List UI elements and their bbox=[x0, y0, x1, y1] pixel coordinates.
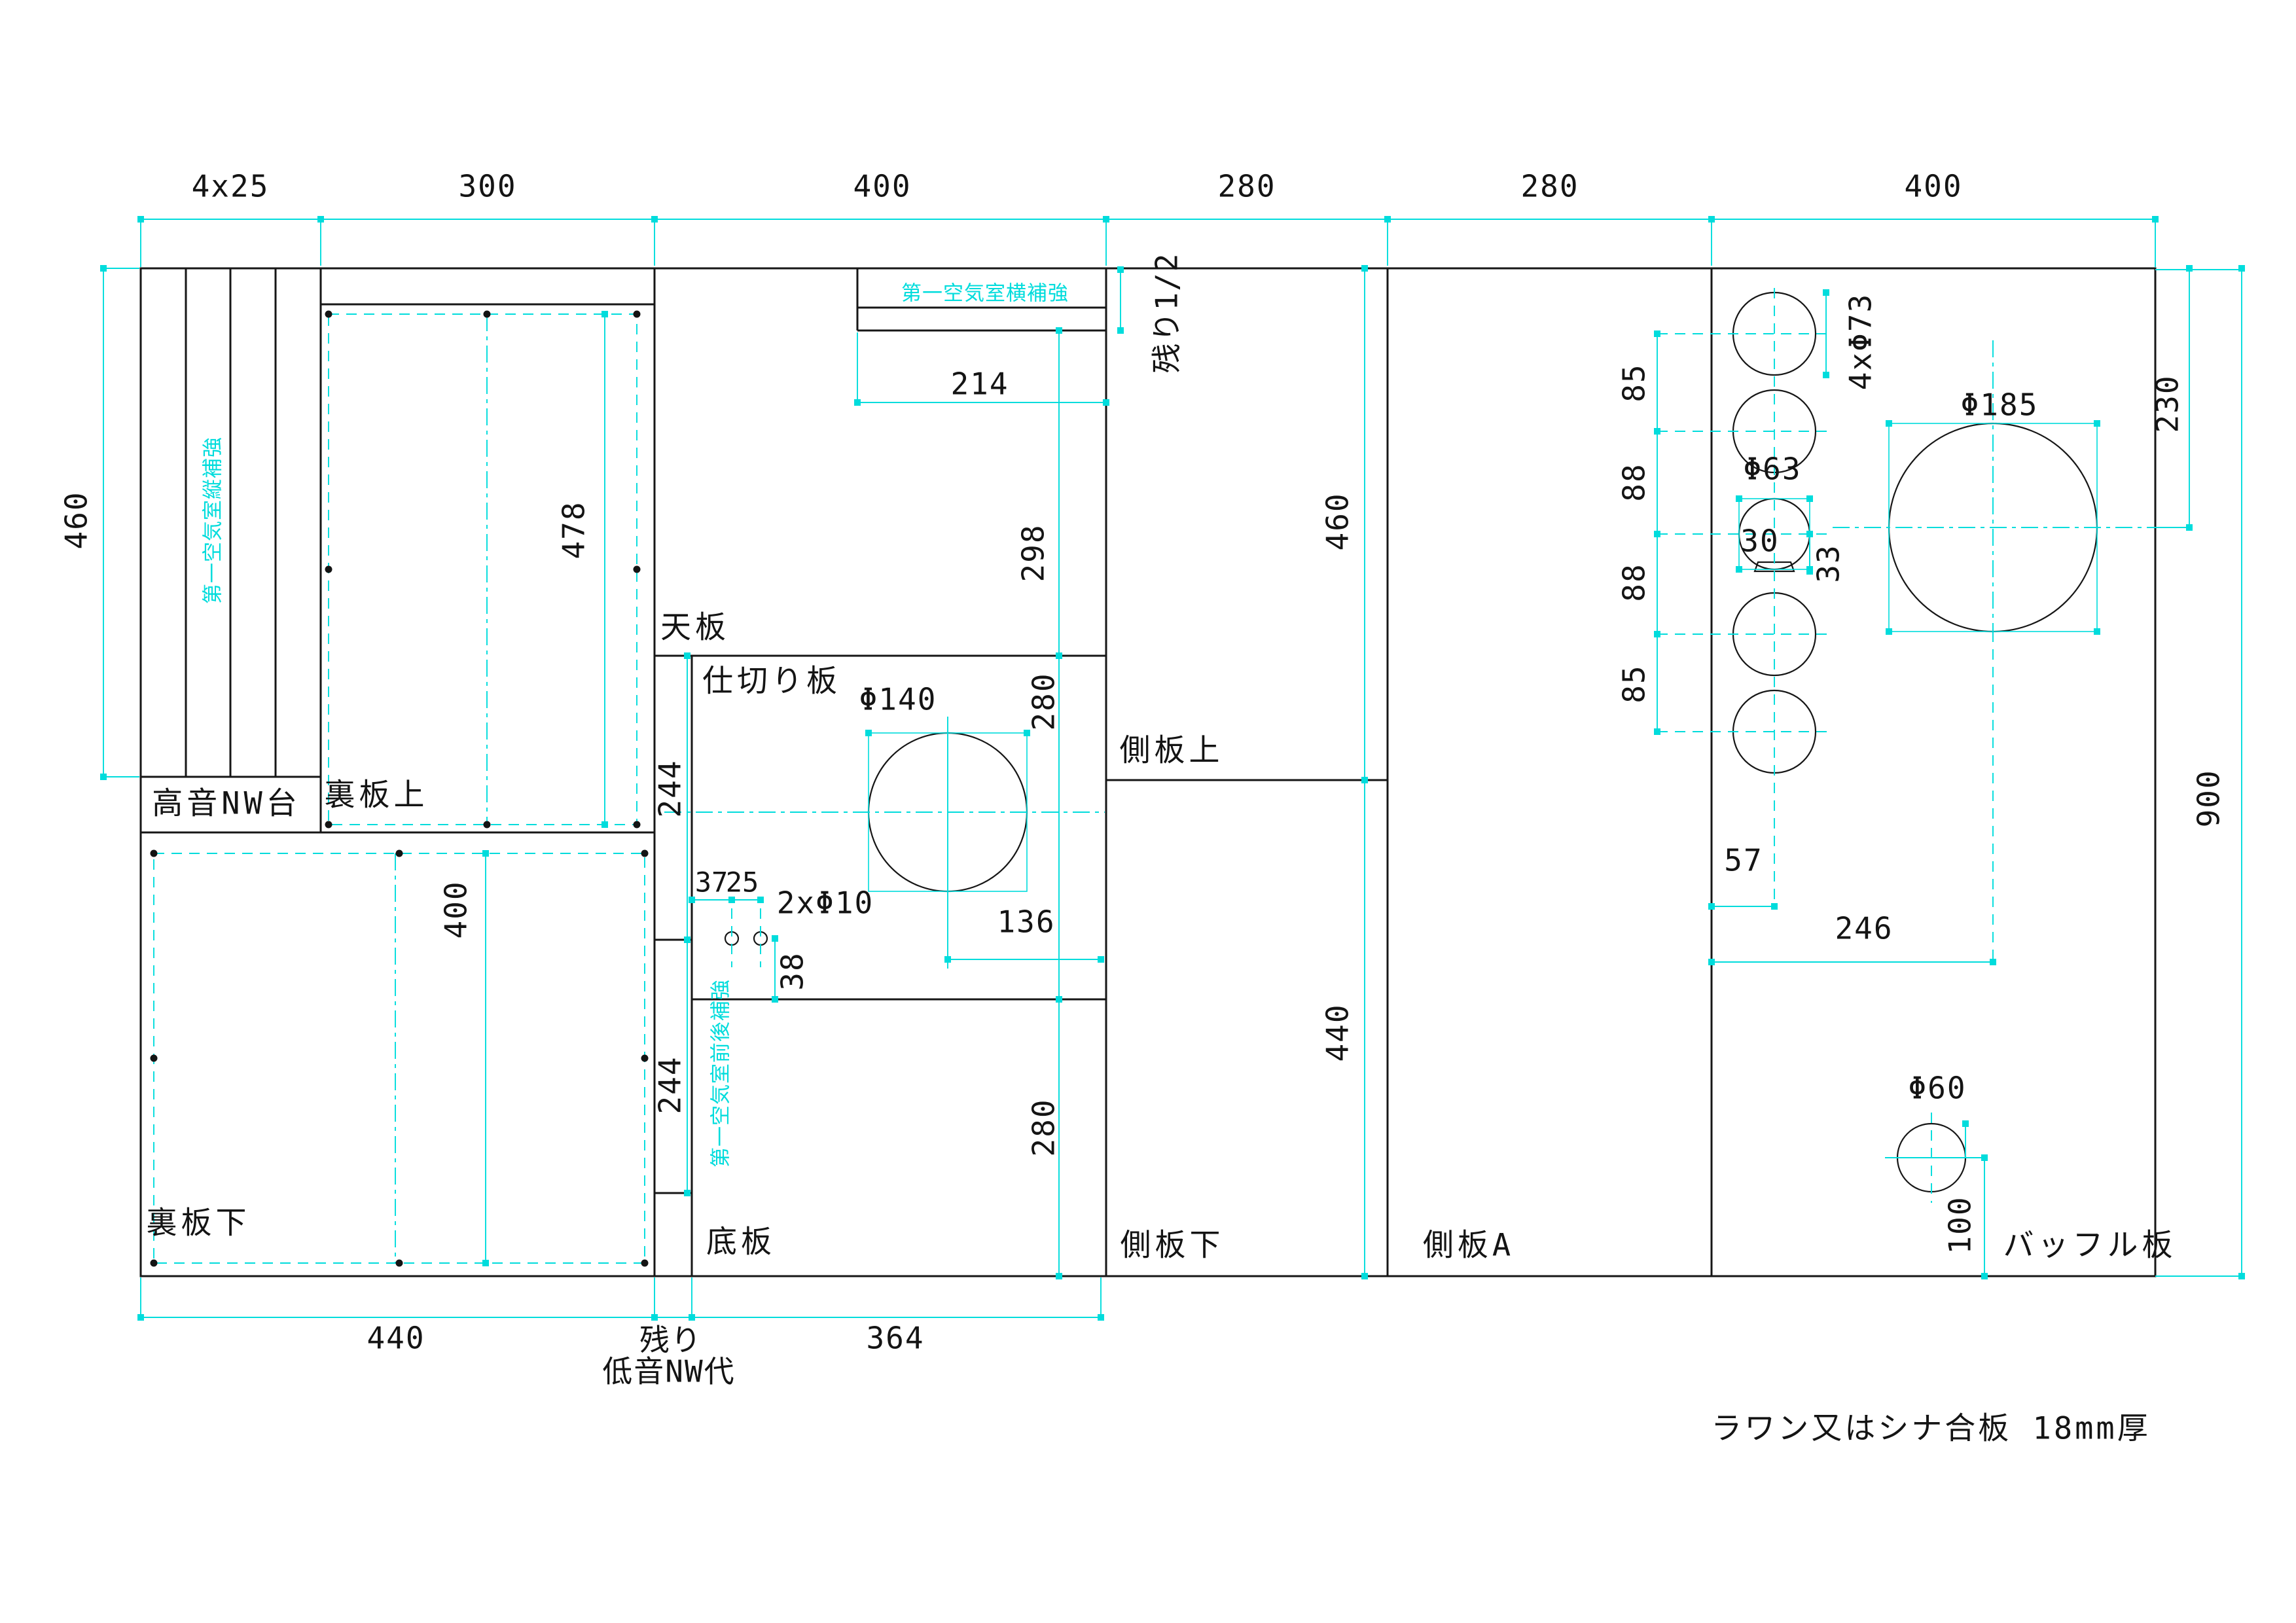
label-side-lower: 側板下 bbox=[1121, 1228, 1225, 1264]
dim-tick bbox=[1361, 777, 1368, 783]
label-back-lower: 裏板下 bbox=[147, 1205, 251, 1241]
marking-dot bbox=[634, 821, 641, 829]
dim-57: 57 bbox=[1724, 843, 1763, 878]
cutout-circles bbox=[725, 293, 2097, 1192]
dim-tick bbox=[1056, 327, 1062, 334]
dim-tick bbox=[1962, 1120, 1969, 1127]
dim-tick bbox=[601, 311, 608, 317]
dim-tick bbox=[2238, 265, 2245, 272]
dim-tick bbox=[689, 1314, 695, 1321]
dim-tick bbox=[1056, 652, 1062, 659]
plywood-cutting-diagram: 4x25 300 400 280 280 400 高音NW台 裏板上 裏板下 天… bbox=[0, 0, 2296, 1623]
dim-tick bbox=[1736, 566, 1742, 573]
label-side-a: 側板A bbox=[1423, 1228, 1515, 1264]
marking-dot bbox=[325, 821, 332, 829]
label-side-upper: 側板上 bbox=[1120, 733, 1224, 769]
dim-tick bbox=[772, 935, 778, 942]
dim-tick bbox=[100, 265, 107, 272]
notes: 残り 低音NW代 ラワン又はシナ合板 18mm厚 bbox=[602, 1323, 2150, 1447]
dim-tick bbox=[601, 821, 608, 828]
dim-88a: 88 bbox=[1617, 463, 1652, 501]
note-low-nw: 低音NW代 bbox=[602, 1354, 735, 1389]
dim-tick bbox=[865, 730, 872, 736]
label-baffle: バッフル板 bbox=[2003, 1228, 2177, 1264]
left-strip-column bbox=[141, 268, 321, 832]
dim-tick bbox=[1806, 531, 1813, 537]
marking-dot bbox=[634, 566, 641, 573]
marking-dot bbox=[484, 311, 491, 318]
sheet-outline bbox=[141, 268, 2155, 1276]
dim-tick bbox=[1103, 399, 1109, 406]
dim-col5: 280 bbox=[1520, 169, 1579, 204]
marking-dot bbox=[396, 850, 403, 857]
dim-100: 100 bbox=[1943, 1196, 1978, 1254]
dim-col2: 300 bbox=[458, 169, 516, 204]
dim-tick bbox=[1771, 903, 1778, 910]
label-bottom-plate: 底板 bbox=[706, 1224, 776, 1260]
label-top-plate: 天板 bbox=[660, 610, 730, 646]
marking-dot bbox=[325, 311, 332, 318]
dim-60: Φ60 bbox=[1908, 1071, 1966, 1106]
label-back-upper: 裏板上 bbox=[325, 777, 429, 813]
label-reinf-vertical: 第一空気室縦補強 bbox=[202, 437, 225, 604]
marking-dot bbox=[484, 821, 491, 829]
dim-divider-280: 280 bbox=[1026, 672, 1062, 730]
dim-136: 136 bbox=[997, 904, 1055, 940]
dim-tick bbox=[1806, 495, 1813, 502]
dim-left-460: 460 bbox=[59, 491, 94, 549]
side-panel-edges bbox=[1106, 268, 1712, 1276]
dim-tick bbox=[651, 1314, 658, 1321]
dim-298: 298 bbox=[1016, 524, 1051, 582]
dim-244-lower: 244 bbox=[653, 1056, 688, 1114]
dim-tick bbox=[684, 652, 691, 659]
marking-rectangles bbox=[154, 314, 2097, 1263]
dim-tick bbox=[944, 956, 951, 963]
dim-tick bbox=[1823, 372, 1829, 378]
dim-bottom-280: 280 bbox=[1026, 1098, 1062, 1156]
dim-25: 25 bbox=[726, 866, 759, 899]
label-tweeter-nw-base: 高音NW台 bbox=[152, 786, 301, 822]
dim-63: Φ63 bbox=[1743, 452, 1801, 487]
dim-tick bbox=[1886, 628, 1892, 635]
dim-tick bbox=[1981, 1154, 1988, 1161]
cutting-layout-drawing: 4x25 300 400 280 280 400 高音NW台 裏板上 裏板下 天… bbox=[0, 0, 2296, 1623]
marking-dot bbox=[325, 566, 332, 573]
dim-tick bbox=[2238, 1273, 2245, 1279]
dim-tick bbox=[684, 1190, 691, 1196]
dim-side-440: 440 bbox=[1320, 1003, 1355, 1061]
marking-dot bbox=[641, 1260, 649, 1267]
dim-88b: 88 bbox=[1617, 563, 1652, 601]
dim-tick bbox=[1117, 327, 1124, 334]
dim-side-460: 460 bbox=[1320, 492, 1355, 550]
dim-tick bbox=[1384, 216, 1391, 223]
back-upper-marking bbox=[329, 314, 637, 825]
marking-dot bbox=[151, 1260, 158, 1267]
dim-tick bbox=[1098, 956, 1104, 963]
note-leftover: 残り bbox=[639, 1323, 702, 1358]
dim-col3: 400 bbox=[853, 169, 911, 204]
reinforcement-labels: 第一空気室縦補強 第一空気室横補強 第一空気室前後補強 bbox=[202, 282, 1069, 1168]
dim-2x10: 2xΦ10 bbox=[777, 885, 874, 921]
note-material: ラワン又はシナ合板 18mm厚 bbox=[1711, 1411, 2150, 1447]
label-leftover-half: 残り1/2 bbox=[1149, 252, 1185, 373]
top-dimension-labels: 4x25 300 400 280 280 400 bbox=[192, 169, 1963, 204]
dim-38: 38 bbox=[775, 952, 810, 990]
dim-tick bbox=[1117, 266, 1124, 273]
dim-85a: 85 bbox=[1617, 363, 1652, 402]
dim-back-440: 440 bbox=[367, 1321, 425, 1356]
label-reinf-horizontal: 第一空気室横補強 bbox=[901, 282, 1069, 306]
dim-back-478: 478 bbox=[556, 501, 592, 559]
dim-185: Φ185 bbox=[1961, 387, 2039, 423]
dim-tick bbox=[2186, 265, 2193, 272]
marking-dot bbox=[151, 1055, 158, 1062]
dim-tick bbox=[1361, 265, 1368, 272]
dim-col6: 400 bbox=[1904, 169, 1962, 204]
dim-244-upper: 244 bbox=[653, 759, 688, 817]
dim-strips: 4x25 bbox=[192, 169, 270, 204]
dim-tick bbox=[317, 216, 324, 223]
dim-tick bbox=[482, 1260, 489, 1266]
dim-tick bbox=[1654, 428, 1660, 435]
dim-900: 900 bbox=[2191, 769, 2227, 827]
dim-tick bbox=[1990, 959, 1996, 965]
dim-tick bbox=[1098, 1314, 1104, 1321]
dim-tick bbox=[482, 850, 489, 857]
dim-tick bbox=[1823, 289, 1829, 296]
dim-246: 246 bbox=[1835, 911, 1893, 946]
dim-tick bbox=[1654, 631, 1660, 637]
dim-tick bbox=[1708, 959, 1715, 965]
dim-back-400: 400 bbox=[439, 880, 474, 938]
dim-tick bbox=[1103, 216, 1109, 223]
dim-tick bbox=[1708, 216, 1715, 223]
marking-dot bbox=[396, 1260, 403, 1267]
label-divider-plate: 仕切り板 bbox=[702, 664, 841, 700]
dim-tick bbox=[1654, 728, 1660, 735]
back-lower-marking bbox=[154, 853, 645, 1263]
marking-dot bbox=[641, 850, 649, 857]
dim-tick bbox=[1654, 330, 1660, 337]
dim-33: 33 bbox=[1811, 544, 1846, 582]
dim-tick bbox=[1981, 1273, 1988, 1279]
dim-tick bbox=[684, 936, 691, 943]
dim-30: 30 bbox=[1740, 524, 1779, 559]
dim-port-140: Φ140 bbox=[859, 682, 937, 717]
dim-tick bbox=[2094, 420, 2100, 427]
dim-85b: 85 bbox=[1617, 664, 1652, 703]
marking-dot bbox=[634, 311, 641, 318]
dim-364: 364 bbox=[866, 1321, 924, 1356]
dim-tick bbox=[651, 216, 658, 223]
dim-4x73: 4xΦ73 bbox=[1843, 293, 1878, 390]
dim-tick bbox=[2152, 216, 2159, 223]
dim-tick bbox=[1886, 420, 1892, 427]
dim-tick bbox=[137, 216, 144, 223]
dim-tick bbox=[1361, 1273, 1368, 1279]
dim-tick bbox=[2094, 628, 2100, 635]
dim-tick bbox=[1708, 903, 1715, 910]
dim-37: 37 bbox=[695, 866, 728, 899]
dim-tick bbox=[1056, 996, 1062, 1003]
marking-dot bbox=[151, 850, 158, 857]
dim-230: 230 bbox=[2150, 374, 2185, 433]
dim-tick bbox=[100, 774, 107, 780]
dim-tick bbox=[137, 1314, 144, 1321]
label-reinf-frontback: 第一空気室前後補強 bbox=[709, 979, 733, 1168]
dim-tick bbox=[2186, 524, 2193, 531]
dim-214: 214 bbox=[950, 366, 1009, 402]
dim-tick bbox=[1056, 1273, 1062, 1279]
dim-tick bbox=[689, 897, 695, 903]
dim-tick bbox=[1654, 531, 1660, 537]
back-panels-edges bbox=[141, 268, 655, 1276]
dim-tick bbox=[772, 996, 778, 1003]
dim-col4: 280 bbox=[1217, 169, 1276, 204]
marking-dot bbox=[641, 1055, 649, 1062]
dim-tick bbox=[1736, 495, 1742, 502]
dim-tick bbox=[854, 399, 861, 406]
